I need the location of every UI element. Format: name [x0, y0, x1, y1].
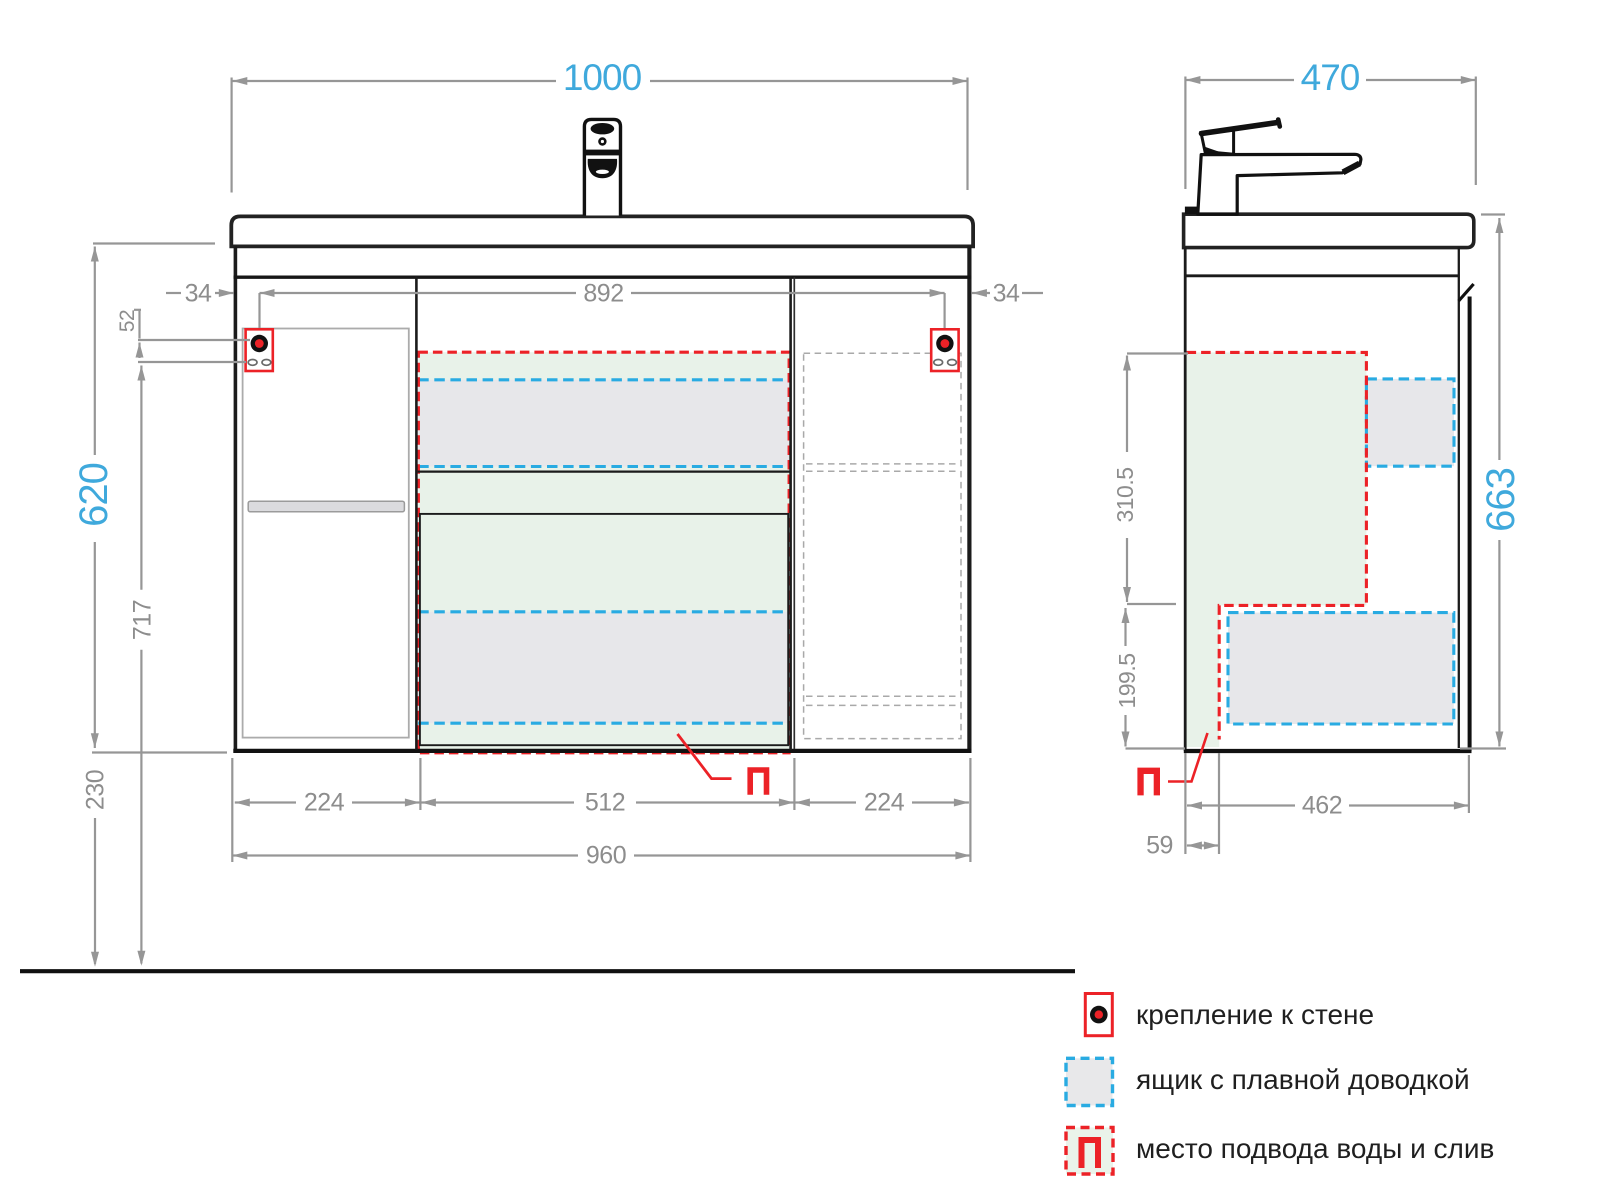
svg-text:34: 34 — [993, 280, 1020, 308]
svg-text:59: 59 — [1146, 832, 1173, 860]
svg-text:224: 224 — [304, 789, 345, 817]
svg-text:1000: 1000 — [563, 57, 642, 98]
svg-text:892: 892 — [583, 280, 623, 308]
svg-text:224: 224 — [864, 789, 905, 817]
svg-text:470: 470 — [1301, 57, 1360, 98]
svg-text:620: 620 — [72, 463, 116, 527]
svg-text:960: 960 — [586, 842, 626, 870]
svg-text:34: 34 — [185, 280, 212, 308]
svg-text:462: 462 — [1302, 792, 1342, 820]
svg-text:663: 663 — [1479, 468, 1523, 532]
svg-text:место подвода воды и слив: место подвода воды и слив — [1136, 1133, 1494, 1164]
svg-text:52: 52 — [116, 310, 139, 332]
svg-text:ящик с плавной доводкой: ящик с плавной доводкой — [1136, 1064, 1470, 1095]
svg-text:310.5: 310.5 — [1112, 467, 1138, 522]
svg-text:512: 512 — [585, 789, 625, 817]
svg-text:крепление к стене: крепление к стене — [1136, 999, 1374, 1030]
svg-text:717: 717 — [129, 600, 157, 640]
svg-text:199.5: 199.5 — [1114, 653, 1140, 708]
svg-text:230: 230 — [82, 770, 110, 810]
